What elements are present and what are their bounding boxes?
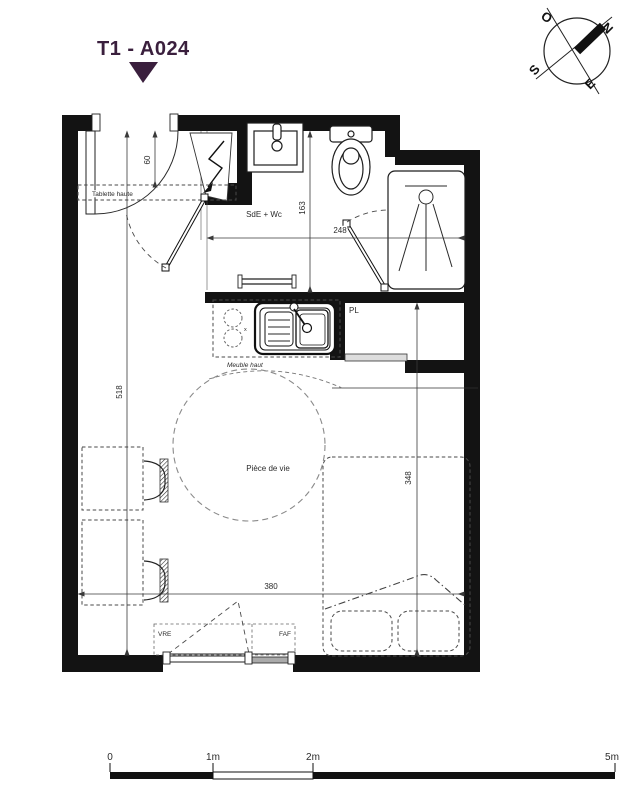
washbasin <box>247 123 303 172</box>
chair-backrest <box>160 459 168 502</box>
scale-bar: 0 1m 2m 5m <box>107 752 619 779</box>
door-leaf-core <box>347 224 385 288</box>
window-glazing-left <box>169 656 245 662</box>
window-frame <box>163 652 170 664</box>
window-frame <box>288 652 295 664</box>
scale-label-0: 0 <box>107 752 113 763</box>
dim-label-248: 248 <box>333 226 347 235</box>
dim-label-163: 163 <box>298 201 307 215</box>
window-projection <box>154 624 295 655</box>
living-room: Pièce de vie <box>82 369 470 656</box>
radiator-post-right <box>292 275 296 288</box>
closet: PL <box>345 306 407 361</box>
scale-label-5m: 5m <box>605 752 619 763</box>
door-swing-arc <box>347 210 391 222</box>
wall-bathroom-south <box>205 292 467 303</box>
sink-faucet-knob <box>303 324 312 333</box>
chair-top <box>144 459 168 502</box>
bed-pillow-left <box>331 611 392 651</box>
window-right-label: FAF <box>279 631 291 638</box>
window-left-label: VRE <box>158 631 172 638</box>
entrance-door-swing-arc <box>95 131 178 214</box>
toilet-button <box>348 131 354 137</box>
kitchenette: x Meuble haut <box>209 300 342 388</box>
scale-segment-0-1 <box>110 772 213 779</box>
door-hinge <box>201 194 208 201</box>
plan-title: T1 - A024 <box>97 38 190 83</box>
round-table <box>173 369 325 521</box>
upper-cabinet-label: Meuble haut <box>227 362 264 369</box>
towel-radiator <box>238 275 296 288</box>
chair-backrest <box>160 559 168 602</box>
bed-blanket-fold <box>325 575 466 609</box>
scale-segment-2-5 <box>313 772 615 779</box>
scale-segment-1-2 <box>213 772 313 779</box>
compass-north-label: N <box>599 20 616 37</box>
radiator-post-left <box>238 275 242 288</box>
wall-right <box>464 150 480 672</box>
title-marker-triangle <box>129 62 158 83</box>
floor-plan-page: T1 - A024 O N S E <box>0 0 639 800</box>
living-room-label: Pièce de vie <box>246 464 290 473</box>
toilet <box>330 126 372 195</box>
desk-bottom <box>82 520 143 605</box>
bed-outline <box>323 457 470 656</box>
chair-bottom <box>144 559 168 602</box>
burner-2 <box>224 329 242 347</box>
dim-label-518: 518 <box>115 385 124 399</box>
wall-top-left <box>62 115 95 131</box>
entrance-door-leaf <box>86 131 95 214</box>
hall-door <box>126 194 208 271</box>
wall-closet-south <box>405 360 480 373</box>
bed-pillow-right <box>398 611 459 651</box>
door-swing-arc <box>126 212 166 268</box>
window-frame <box>245 652 252 664</box>
burner-1 <box>224 309 242 327</box>
shower <box>388 171 465 289</box>
closet-label: PL <box>349 306 359 315</box>
scale-label-2m: 2m <box>306 752 320 763</box>
desk-top <box>82 447 143 510</box>
door-leaf-core <box>166 198 205 268</box>
compass-west-label: O <box>538 8 555 26</box>
dim-label-348: 348 <box>404 471 413 485</box>
dim-label-380: 380 <box>264 582 278 591</box>
windows: VRE FAF <box>154 601 295 664</box>
door-hinge <box>381 284 388 291</box>
toilet-bowl-detail <box>343 148 359 164</box>
basin-faucet <box>273 124 281 140</box>
basin-drain <box>272 141 282 151</box>
compass-rose: O N S E <box>526 8 616 94</box>
wall-bottom-right <box>293 655 480 672</box>
bathroom-door <box>343 210 391 291</box>
kitchen-mark: x <box>244 327 247 333</box>
closet-sliding-door <box>345 354 407 361</box>
window-glazing-right <box>252 657 288 663</box>
floor-plan-canvas: T1 - A024 O N S E <box>0 0 639 800</box>
window-opening-swing <box>168 601 249 654</box>
wall-left <box>62 115 78 672</box>
page-title: T1 - A024 <box>97 38 190 60</box>
dim-label-60: 60 <box>143 155 152 164</box>
wall-bottom-left <box>62 655 163 672</box>
door-frame-right <box>170 114 178 131</box>
door-frame-left <box>92 114 100 131</box>
scale-label-1m: 1m <box>206 752 220 763</box>
bathroom-label: SdE + Wc <box>246 210 282 219</box>
